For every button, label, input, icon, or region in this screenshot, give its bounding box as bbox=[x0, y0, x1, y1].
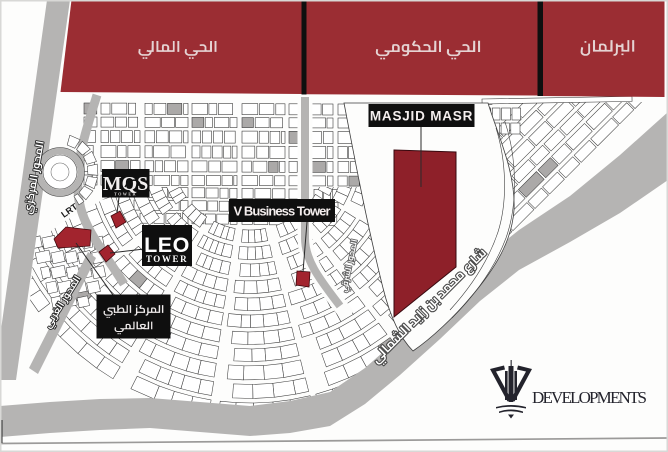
svg-text:DEVELOPMENTS: DEVELOPMENTS bbox=[532, 388, 647, 407]
svg-text:V Business Tower: V Business Tower bbox=[234, 204, 331, 219]
svg-text:TOWER: TOWER bbox=[146, 254, 188, 264]
svg-text:MASJID MASR: MASJID MASR bbox=[370, 109, 473, 124]
svg-text:TOWER: TOWER bbox=[114, 192, 137, 197]
